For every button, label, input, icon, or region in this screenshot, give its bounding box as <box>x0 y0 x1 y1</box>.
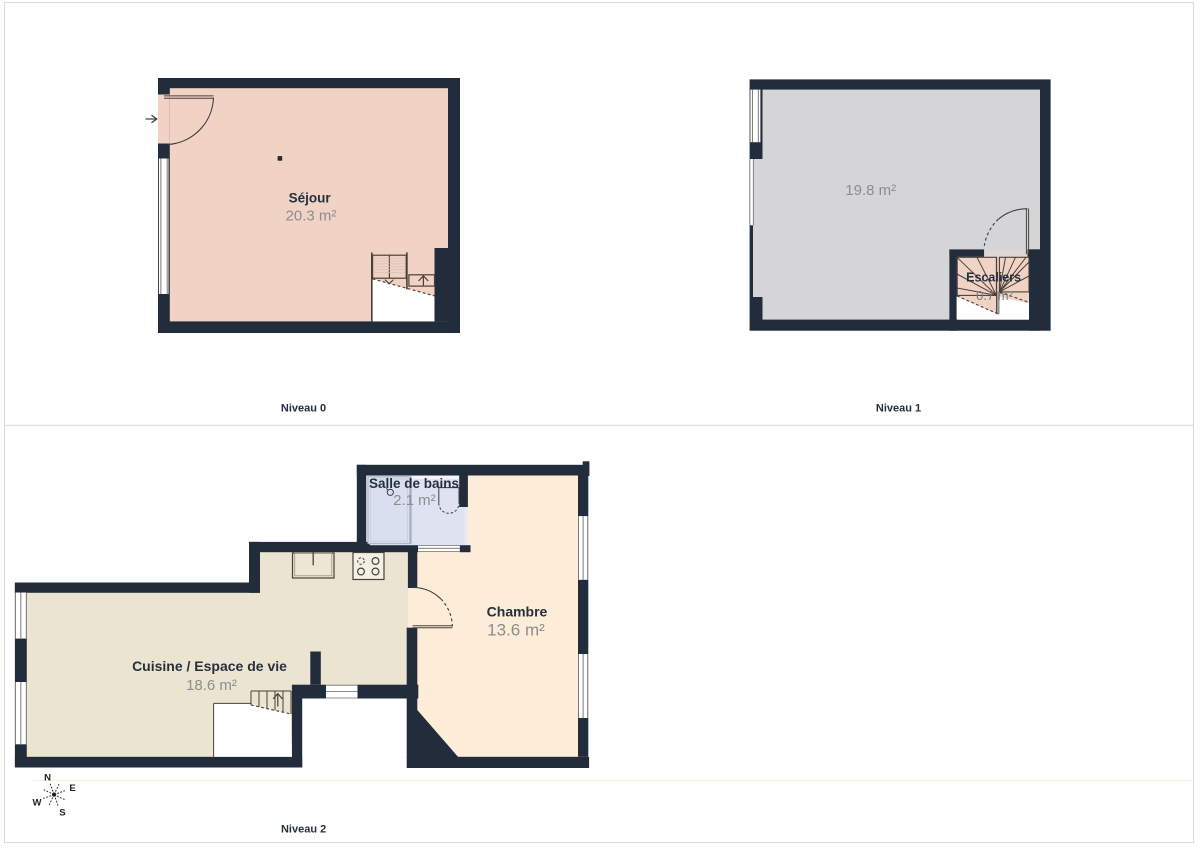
svg-text:2.1 m²: 2.1 m² <box>393 492 436 509</box>
svg-text:Salle de bains: Salle de bains <box>369 476 459 491</box>
svg-text:0.7 m²: 0.7 m² <box>976 288 1014 303</box>
svg-text:E: E <box>69 783 75 794</box>
svg-text:20.3 m²: 20.3 m² <box>286 208 337 225</box>
svg-text:13.6 m²: 13.6 m² <box>487 621 545 640</box>
svg-text:19.8 m²: 19.8 m² <box>845 182 896 199</box>
svg-text:Niveau 2: Niveau 2 <box>281 824 326 836</box>
svg-text:Escaliers: Escaliers <box>966 271 1021 285</box>
svg-text:Niveau 1: Niveau 1 <box>876 403 921 415</box>
svg-text:Niveau 0: Niveau 0 <box>281 403 326 415</box>
svg-text:Séjour: Séjour <box>289 191 332 206</box>
svg-text:N: N <box>44 772 51 783</box>
svg-text:18.6 m²: 18.6 m² <box>186 677 237 694</box>
svg-text:Chambre: Chambre <box>487 603 548 619</box>
svg-text:Cuisine / Espace de vie: Cuisine / Espace de vie <box>132 658 287 674</box>
svg-text:W: W <box>33 798 42 809</box>
svg-text:S: S <box>59 807 65 818</box>
